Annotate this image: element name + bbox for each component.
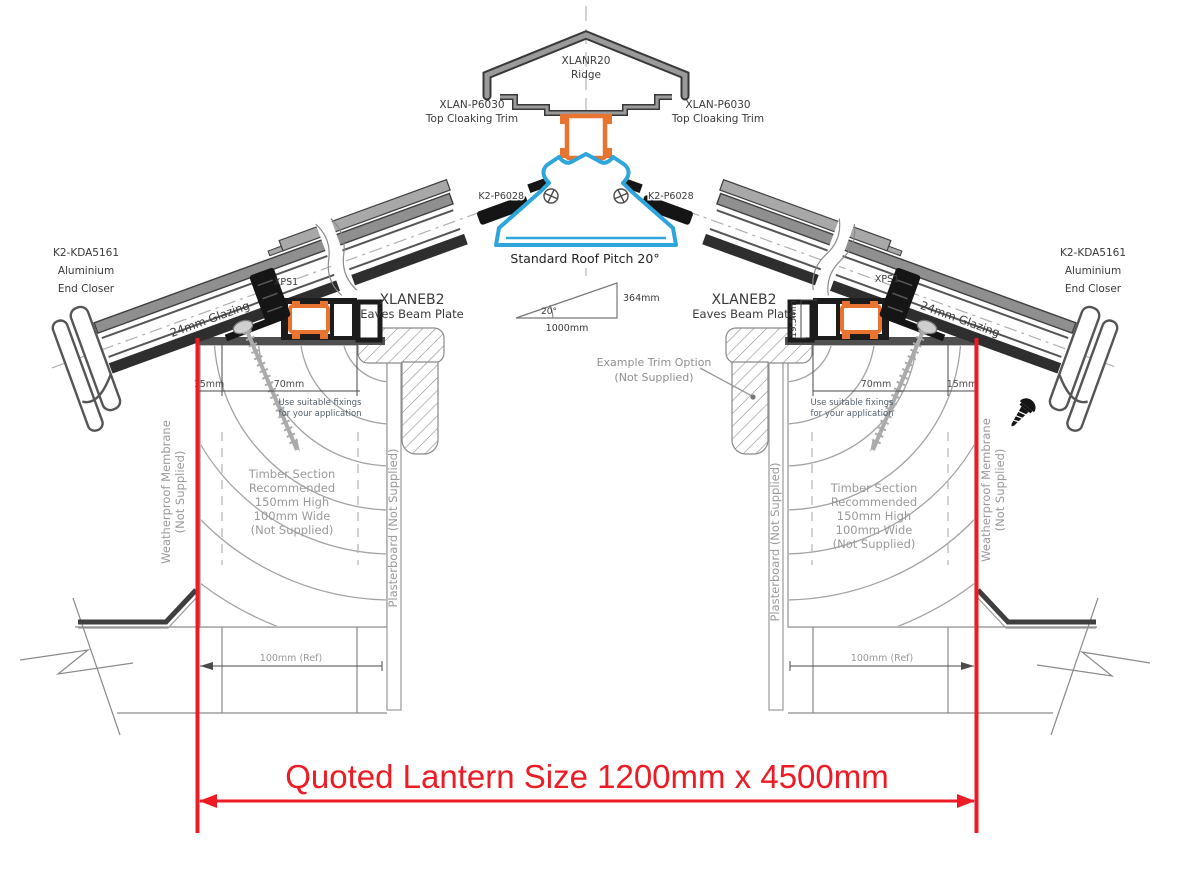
right-timber-note: Timber Section Recommended 150mm High 10… <box>830 481 918 551</box>
left-membrane <box>78 590 198 628</box>
left-plasterboard-label: Plasterboard (Not Supplied) <box>386 448 400 607</box>
right-xps-label: XPS1 <box>875 274 899 285</box>
left-top-cloaking-trim <box>279 180 450 251</box>
trim-option-l2: (Not Supplied) <box>614 371 693 384</box>
screw-icon <box>1004 395 1039 432</box>
timber-note-l1: Timber Section <box>830 481 918 495</box>
right-plasterboard-label: Plasterboard (Not Supplied) <box>768 462 782 621</box>
right-fixing-note-l2: for your application <box>810 409 893 419</box>
lantern-section-drawing: 24mm Glazing 24mm Glazing <box>0 0 1184 872</box>
ridge-code-label: XLANR20 <box>562 55 611 67</box>
right-end-closer-l2: Aluminium <box>1065 265 1121 277</box>
break-line-left <box>20 650 133 674</box>
left-fixing-note-l2: for your application <box>278 409 361 419</box>
timber-note-l2: Recommended <box>831 495 917 509</box>
pitch-rise-label: 364mm <box>623 293 660 304</box>
timber-note-l1: Timber Section <box>248 467 336 481</box>
right-end-closer-l3: End Closer <box>1065 283 1122 295</box>
right-wall-ref-label: 100mm (Ref) <box>851 653 913 664</box>
timber-note-l5: (Not Supplied) <box>833 537 916 551</box>
timber-note-l2: Recommended <box>249 481 335 495</box>
quoted-dim-left-arrow <box>199 794 217 808</box>
timber-note-l4: 100mm Wide <box>254 509 331 523</box>
right-ridge-fixing-label: K2-P6028 <box>648 191 694 202</box>
ridge-thermal-break <box>560 114 612 158</box>
timber-note-l3: 150mm High <box>255 495 329 509</box>
right-membrane-label-l2: (Not Supplied) <box>993 449 1007 532</box>
timber-note-l3: 150mm High <box>837 509 911 523</box>
right-beam-width-dim: 70mm <box>861 379 892 390</box>
break-line-right <box>1037 652 1150 676</box>
left-fixing-note-l1: Use suitable fixings <box>279 398 363 408</box>
right-trim-name-label: Top Cloaking Trim <box>671 113 764 125</box>
roof-pitch-label: Standard Roof Pitch 20° <box>510 251 659 266</box>
pitch-base-label: 1000mm <box>546 323 589 334</box>
right-edge-offset-dim: 15mm <box>947 379 978 390</box>
right-fixing-note-l1: Use suitable fixings <box>811 398 895 408</box>
left-ridge-fixing-label: K2-P6028 <box>478 191 524 202</box>
left-trim-code-label: XLAN-P6030 <box>439 99 504 111</box>
left-trim-name-label: Top Cloaking Trim <box>425 113 518 125</box>
quoted-dim-right-arrow <box>957 794 975 808</box>
quoted-dim-right-extent <box>975 338 979 833</box>
right-top-cloaking-trim <box>720 180 891 251</box>
right-end-closer-code: K2-KDA5161 <box>1060 247 1126 259</box>
quoted-dim-left-extent <box>196 338 200 833</box>
left-eaves-beam-code: XLANEB2 <box>379 292 444 308</box>
pitch-triangle: 20° 1000mm 364mm <box>516 283 660 334</box>
left-eaves-beam-name: Eaves Beam Plate <box>360 307 463 321</box>
timber-note-l4: 100mm Wide <box>836 523 913 537</box>
left-end-closer-l2: Aluminium <box>58 265 114 277</box>
ridge-name-label: Ridge <box>571 69 601 81</box>
left-xps-label: XPS1 <box>274 277 298 288</box>
left-end-closer-code: K2-KDA5161 <box>53 247 119 259</box>
pitch-angle-label: 20° <box>541 307 557 317</box>
right-eaves-beam-code: XLANEB2 <box>711 292 776 308</box>
right-trim-code-label: XLAN-P6030 <box>685 99 750 111</box>
left-wall-ref-label: 100mm (Ref) <box>260 653 322 664</box>
timber-note-l5: (Not Supplied) <box>251 523 334 537</box>
left-membrane-label-l1: Weatherproof Membrane <box>159 420 173 564</box>
left-membrane-label-l2: (Not Supplied) <box>173 451 187 534</box>
left-beam-width-dim: 70mm <box>274 379 305 390</box>
trim-option-l1: Example Trim Option <box>597 356 712 369</box>
right-eaves-beam-name: Eaves Beam Plate <box>692 307 795 321</box>
quoted-size-label: Quoted Lantern Size 1200mm x 4500mm <box>285 758 889 795</box>
left-timber-note: Timber Section Recommended 150mm High 10… <box>248 467 336 537</box>
left-end-closer-l3: End Closer <box>58 283 115 295</box>
right-membrane <box>976 590 1096 628</box>
right-membrane-label-l1: Weatherproof Membrane <box>979 418 993 562</box>
